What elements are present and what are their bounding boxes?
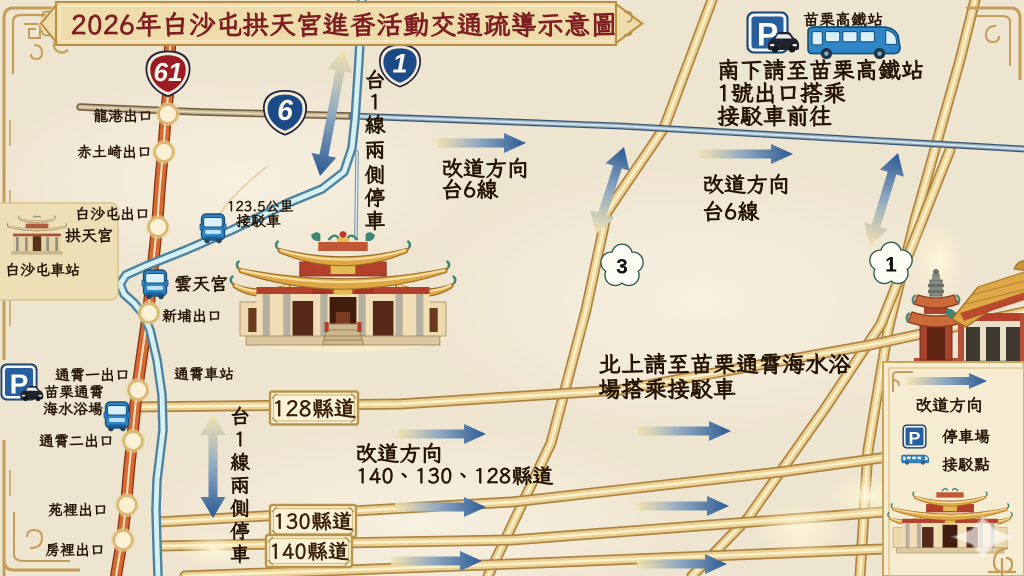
svg-text:場搭乘接駁車: 場搭乘接駁車 (598, 373, 736, 404)
svg-text:130縣道: 130縣道 (273, 507, 353, 535)
svg-text:新埔出口: 新埔出口 (162, 307, 222, 326)
svg-text:128縣道: 128縣道 (272, 394, 356, 423)
svg-text:線: 線 (365, 110, 386, 138)
svg-text:雲天宮: 雲天宮 (174, 272, 228, 296)
svg-text:拱天宮: 拱天宮 (65, 224, 113, 246)
svg-text:1: 1 (392, 49, 407, 79)
svg-text:白沙屯出口: 白沙屯出口 (75, 205, 150, 224)
svg-text:台6線: 台6線 (702, 197, 759, 226)
svg-text:白沙屯車站: 白沙屯車站 (5, 261, 80, 280)
svg-text:2026年白沙屯拱天宮進香活動交通疏導示意圖: 2026年白沙屯拱天宮進香活動交通疏導示意圖 (71, 6, 618, 42)
svg-text:通霄二出口: 通霄二出口 (39, 432, 114, 451)
svg-text:車: 車 (230, 540, 250, 567)
svg-text:改道方向: 改道方向 (702, 170, 790, 199)
svg-text:3: 3 (616, 256, 628, 279)
svg-text:房裡出口: 房裡出口 (45, 541, 105, 560)
svg-text:海水浴場: 海水浴場 (43, 400, 103, 419)
svg-text:P: P (909, 428, 921, 448)
svg-text:接駁點: 接駁點 (942, 453, 990, 475)
svg-text:1: 1 (885, 254, 897, 277)
svg-text:赤土崎出口: 赤土崎出口 (77, 143, 152, 162)
svg-text:61: 61 (153, 57, 182, 87)
svg-text:苗栗高鐵站: 苗栗高鐵站 (803, 8, 883, 30)
svg-text:6: 6 (277, 95, 293, 127)
svg-text:車: 車 (365, 206, 386, 234)
svg-text:改道方向: 改道方向 (915, 393, 983, 416)
svg-text:苑裡出口: 苑裡出口 (48, 501, 108, 520)
svg-text:兩: 兩 (365, 135, 386, 163)
svg-text:龍港出口: 龍港出口 (93, 107, 153, 126)
svg-text:台6線: 台6線 (441, 175, 498, 204)
svg-text:通霄車站: 通霄車站 (174, 365, 234, 384)
svg-text:接駁車前往: 接駁車前往 (717, 100, 832, 131)
svg-text:140縣道: 140縣道 (269, 537, 349, 565)
svg-text:140、130、128縣道: 140、130、128縣道 (356, 461, 553, 489)
svg-text:接駁車: 接駁車 (236, 212, 281, 231)
svg-text:停車場: 停車場 (942, 425, 990, 447)
